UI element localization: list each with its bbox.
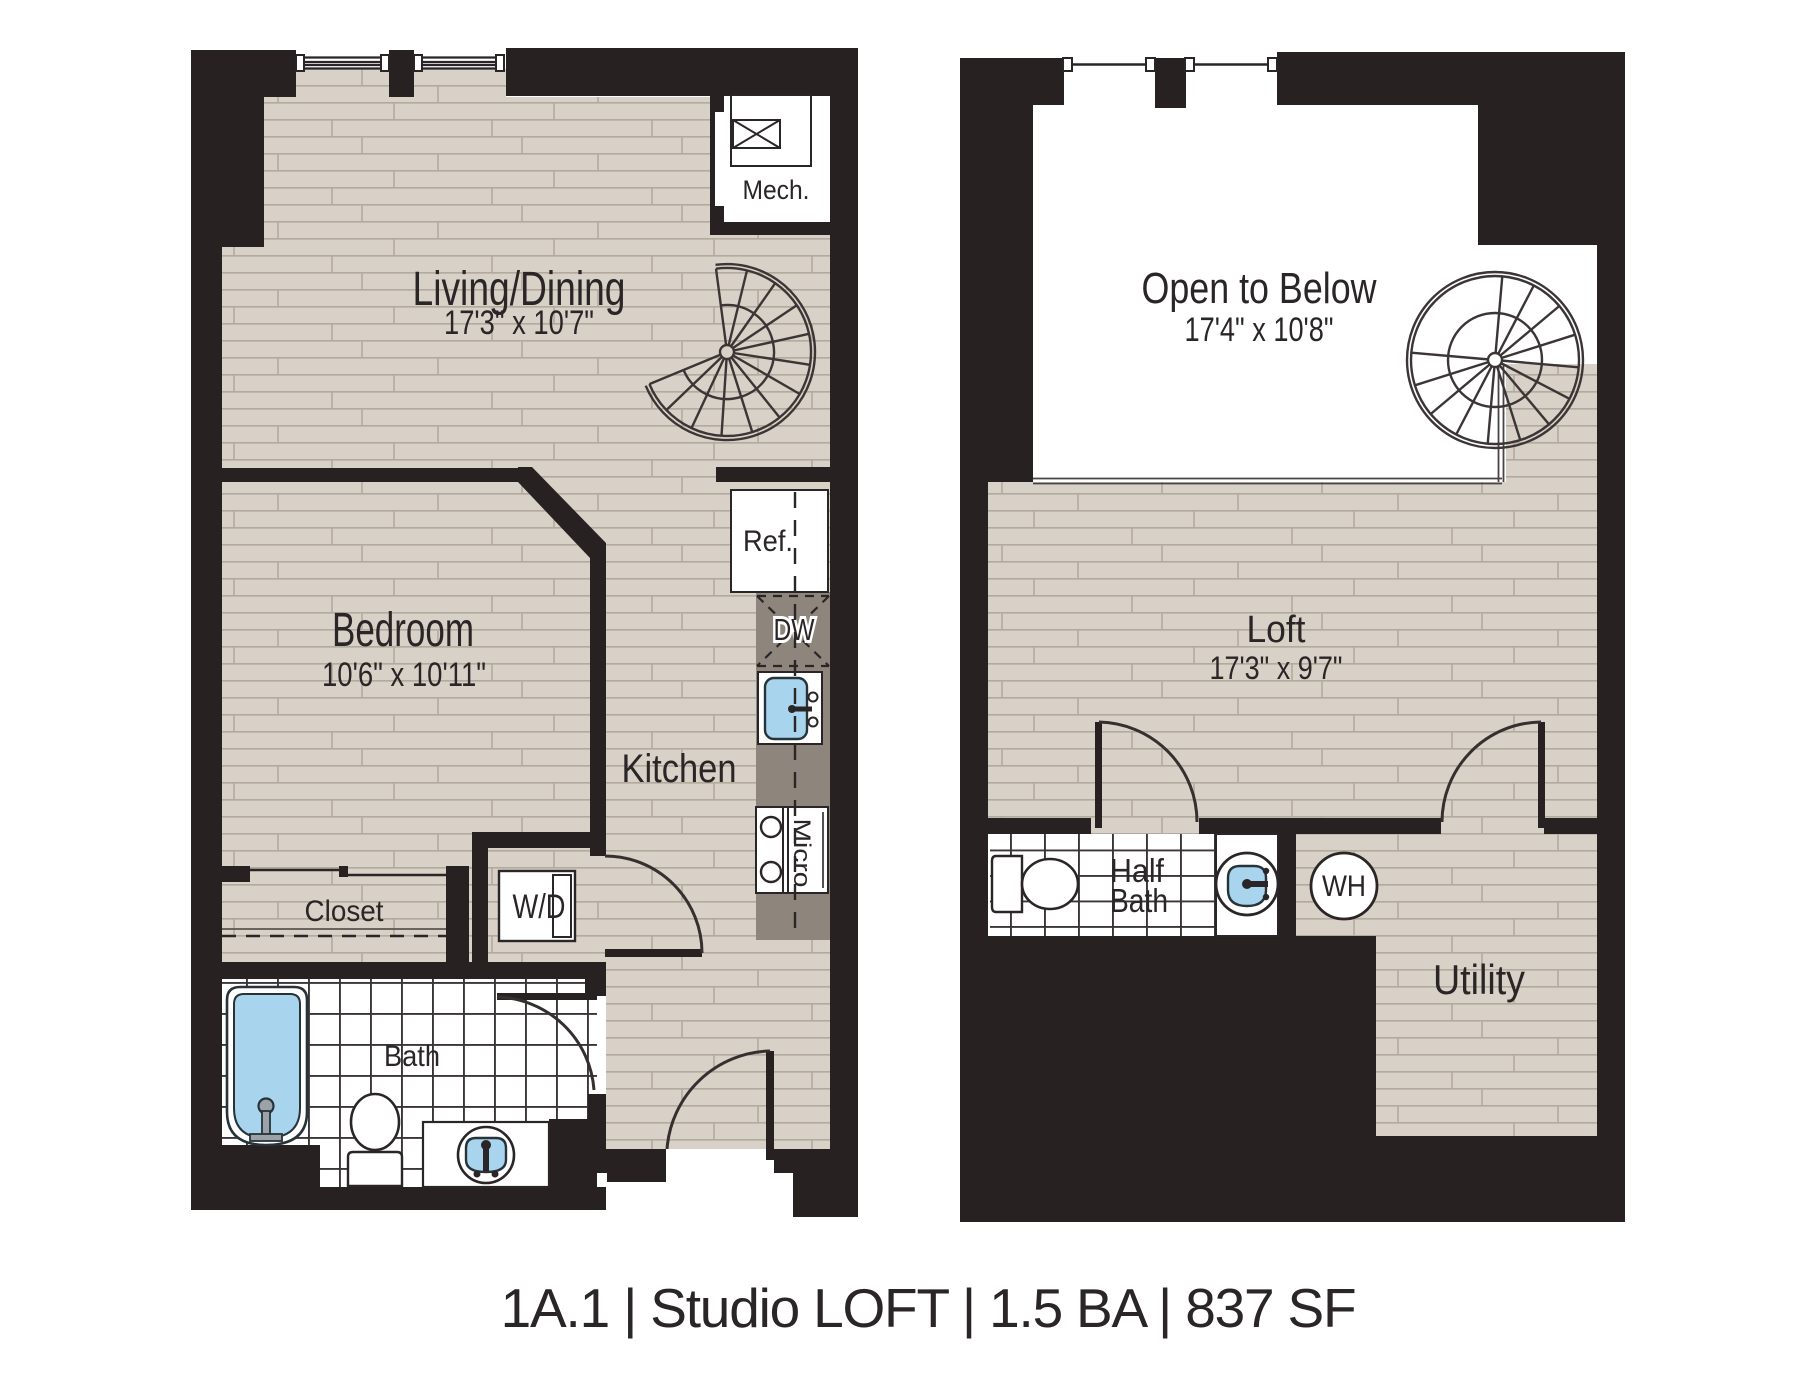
svg-text:10'6" x 10'11": 10'6" x 10'11" xyxy=(322,656,486,694)
svg-text:Ref.: Ref. xyxy=(743,525,793,558)
svg-text:Open to Below: Open to Below xyxy=(1142,264,1377,313)
svg-text:17'3" x 10'7": 17'3" x 10'7" xyxy=(444,304,594,342)
svg-text:Bath: Bath xyxy=(384,1040,440,1073)
svg-text:Bedroom: Bedroom xyxy=(332,604,474,657)
svg-text:17'4" x 10'8": 17'4" x 10'8" xyxy=(1185,311,1334,349)
svg-text:W/D: W/D xyxy=(513,888,566,926)
svg-text:Utility: Utility xyxy=(1433,956,1525,1003)
svg-text:Micro: Micro xyxy=(788,819,815,888)
svg-text:Loft: Loft xyxy=(1247,609,1306,651)
svg-text:1A.1 | Studio LOFT | 1.5 BA |: 1A.1 | Studio LOFT | 1.5 BA | 837 SF xyxy=(501,1277,1356,1339)
svg-text:Mech.: Mech. xyxy=(743,175,810,205)
svg-text:Closet: Closet xyxy=(305,895,385,928)
svg-text:WH: WH xyxy=(1322,870,1366,903)
svg-text:17'3" x 9'7": 17'3" x 9'7" xyxy=(1210,650,1343,686)
svg-text:Bath: Bath xyxy=(1110,882,1168,919)
svg-text:Kitchen: Kitchen xyxy=(622,747,737,791)
